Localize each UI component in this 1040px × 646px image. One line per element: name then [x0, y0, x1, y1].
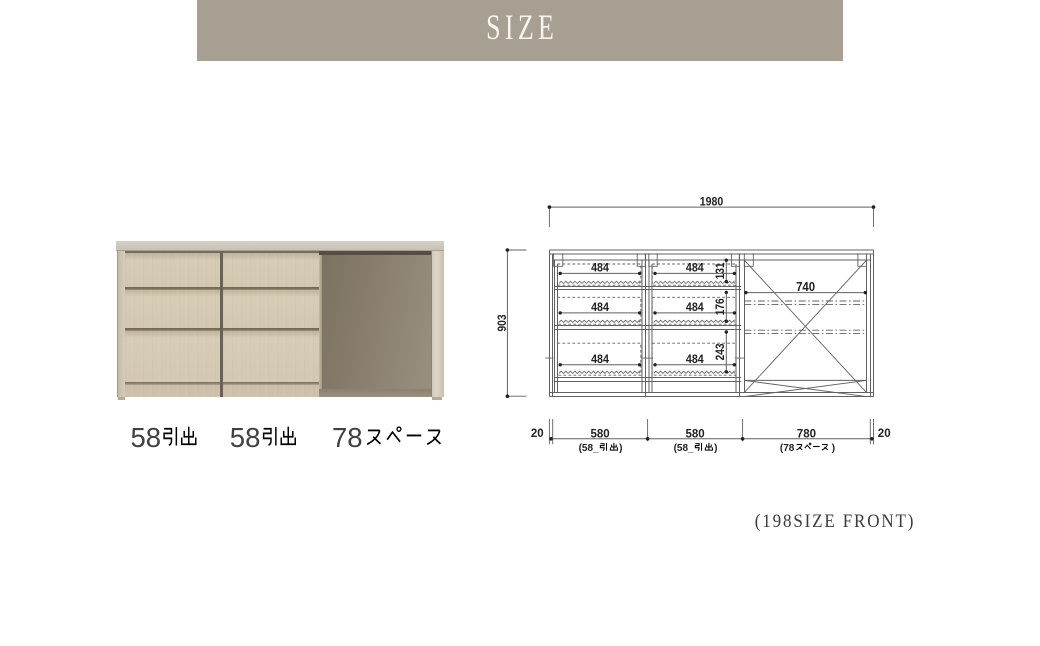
svg-text:780: 780: [797, 428, 816, 440]
svg-text:484: 484: [686, 263, 704, 275]
svg-text:20: 20: [531, 428, 544, 440]
svg-text:740: 740: [796, 280, 815, 294]
svg-text:(78: (78: [780, 443, 795, 454]
svg-text:78: 78: [332, 422, 363, 453]
svg-text:): ): [714, 443, 717, 454]
svg-text:): ): [619, 443, 622, 454]
svg-text:20: 20: [878, 428, 891, 440]
svg-text:580: 580: [686, 428, 705, 440]
svg-text:176: 176: [713, 298, 727, 315]
svg-text:484: 484: [591, 354, 609, 366]
svg-text:580: 580: [591, 428, 610, 440]
svg-text:903: 903: [495, 314, 509, 331]
svg-text:1980: 1980: [700, 194, 724, 208]
svg-text:484: 484: [591, 263, 609, 275]
svg-text:58: 58: [230, 422, 261, 453]
svg-text:131: 131: [713, 262, 727, 279]
svg-text:58: 58: [131, 422, 162, 453]
svg-text:484: 484: [591, 302, 609, 314]
svg-text:484: 484: [686, 354, 704, 366]
svg-text:): ): [832, 443, 835, 454]
svg-text:(58_: (58_: [674, 443, 694, 454]
svg-text:484: 484: [686, 302, 704, 314]
svg-text:243: 243: [713, 343, 727, 360]
svg-text:(58_: (58_: [579, 443, 599, 454]
